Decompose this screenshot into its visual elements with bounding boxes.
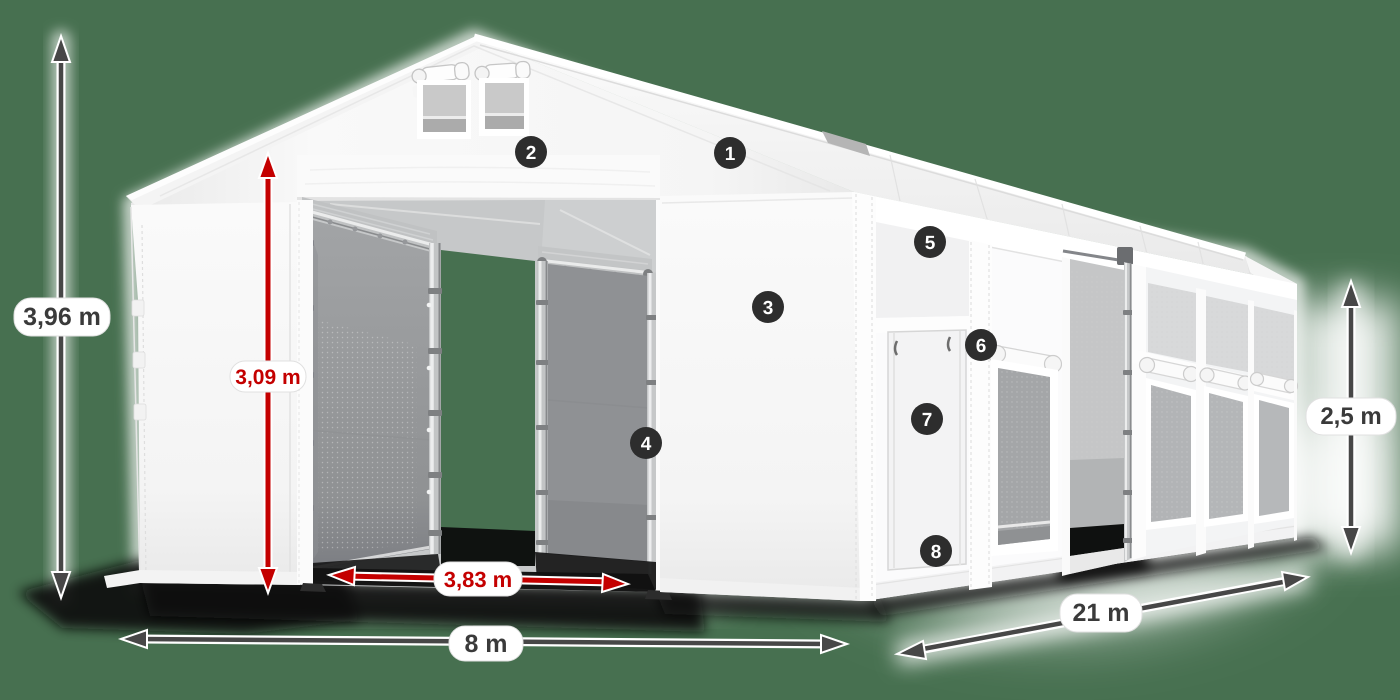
- svg-text:7: 7: [922, 410, 933, 431]
- svg-text:8: 8: [931, 542, 942, 563]
- svg-text:3,83 m: 3,83 m: [444, 567, 513, 592]
- svg-text:4: 4: [641, 434, 652, 455]
- svg-text:5: 5: [925, 233, 936, 254]
- svg-text:8 m: 8 m: [464, 630, 507, 658]
- svg-text:21 m: 21 m: [1073, 599, 1130, 627]
- svg-text:1: 1: [725, 144, 736, 165]
- svg-text:3: 3: [763, 298, 774, 319]
- svg-text:6: 6: [976, 336, 987, 357]
- svg-text:3,96 m: 3,96 m: [23, 303, 101, 331]
- svg-text:2,5 m: 2,5 m: [1320, 403, 1381, 430]
- svg-text:3,09 m: 3,09 m: [235, 366, 300, 389]
- svg-text:2: 2: [526, 143, 537, 164]
